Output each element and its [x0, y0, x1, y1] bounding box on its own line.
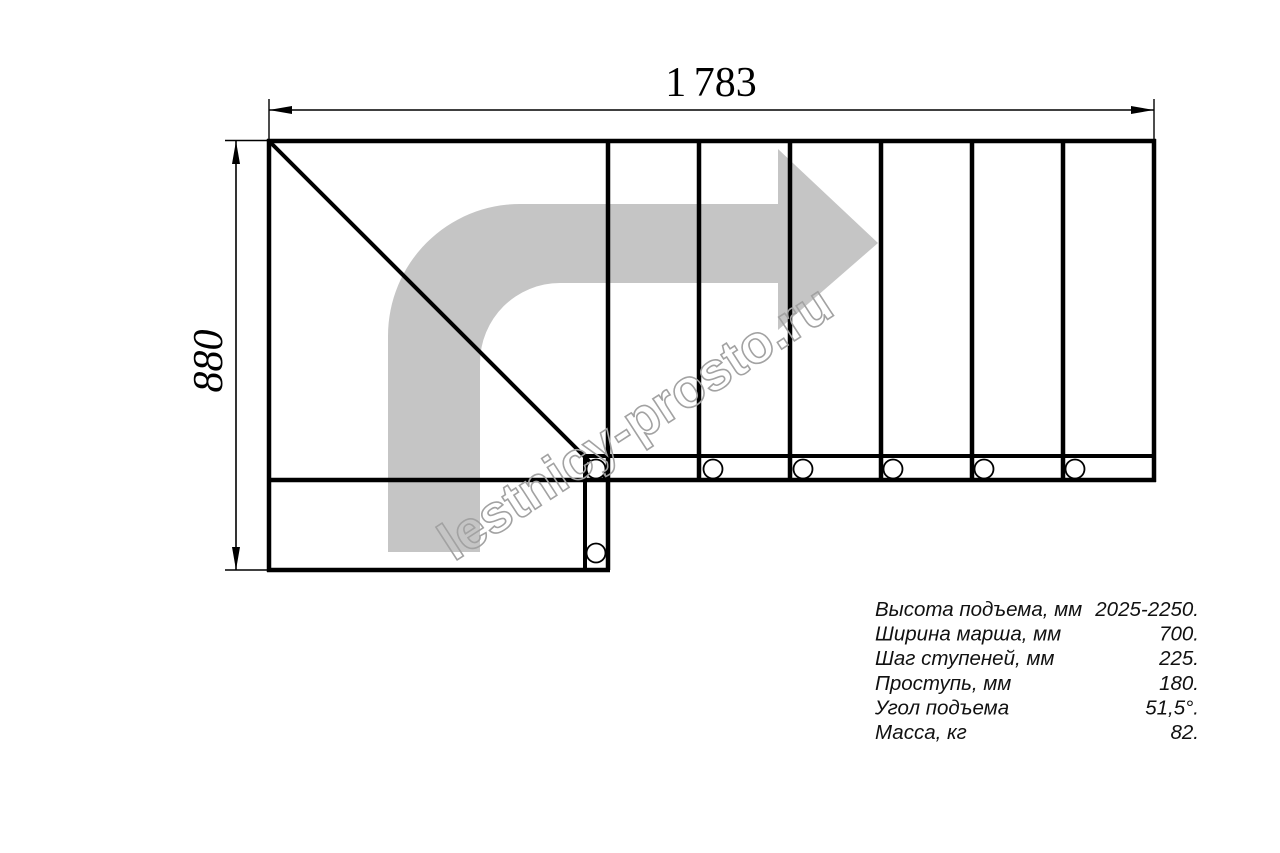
svg-text:880: 880 [186, 330, 232, 393]
svg-text:82.: 82. [1171, 721, 1200, 744]
svg-text:Угол подъема: Угол подъема [874, 696, 1009, 719]
svg-text:700.: 700. [1159, 623, 1199, 646]
svg-text:180.: 180. [1159, 672, 1199, 695]
svg-text:Шаг ступеней, мм: Шаг ступеней, мм [875, 647, 1054, 670]
svg-text:Ширина марша, мм: Ширина марша, мм [875, 623, 1061, 646]
svg-text:1 783: 1 783 [665, 60, 757, 106]
svg-text:51,5°.: 51,5°. [1145, 696, 1199, 719]
svg-text:Проступь, мм: Проступь, мм [875, 672, 1011, 695]
svg-text:Масса, кг: Масса, кг [875, 721, 967, 744]
svg-text:2025-2250.: 2025-2250. [1094, 598, 1199, 621]
svg-text:Высота подъема, мм: Высота подъема, мм [875, 598, 1082, 621]
svg-text:225.: 225. [1158, 647, 1199, 670]
